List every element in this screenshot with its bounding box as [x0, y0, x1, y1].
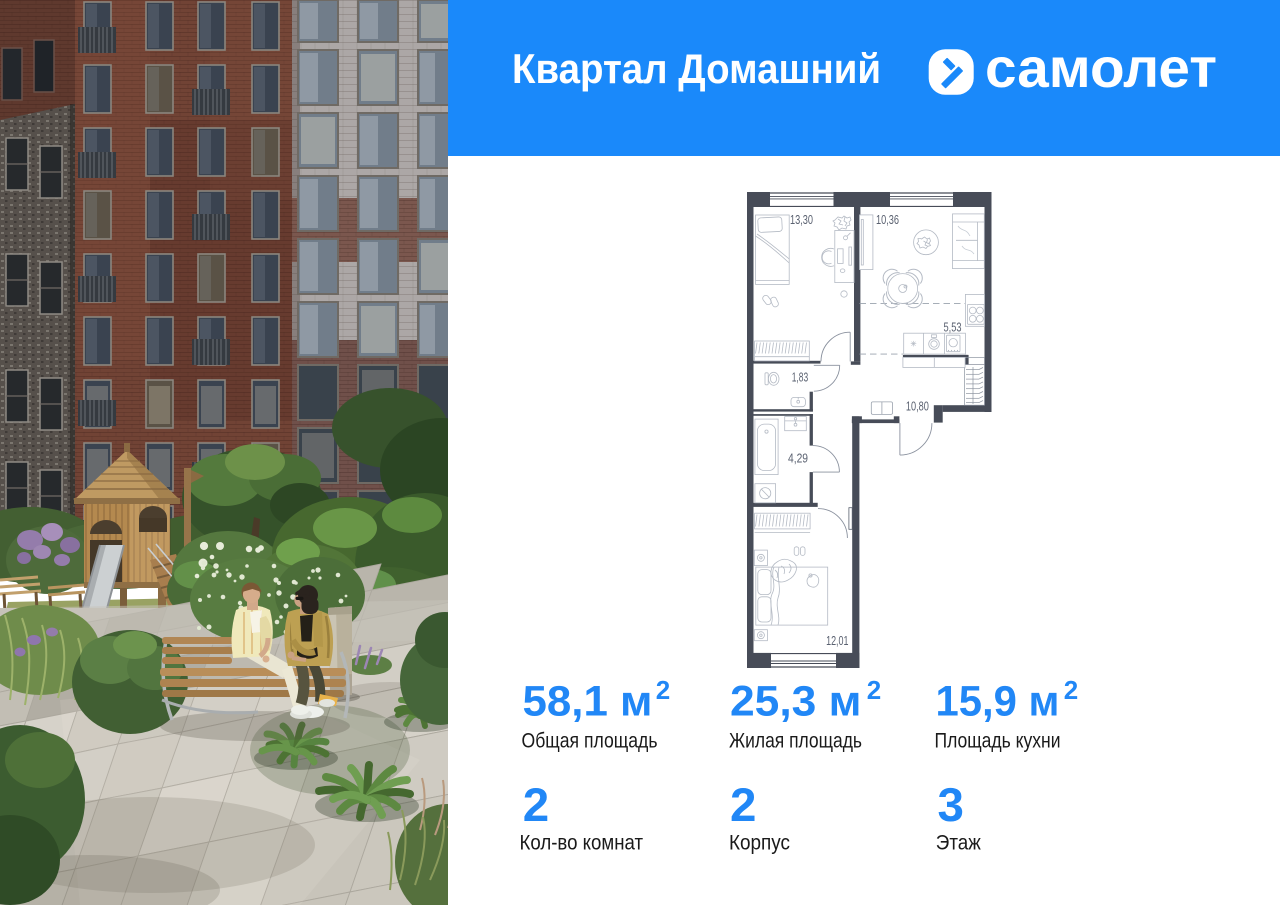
- svg-text:12,01: 12,01: [826, 634, 848, 648]
- svg-text:Жилая площадь: Жилая площадь: [729, 729, 862, 753]
- svg-text:2: 2: [1064, 675, 1078, 705]
- svg-text:3: 3: [938, 779, 964, 832]
- svg-text:15,9 м: 15,9 м: [936, 678, 1060, 726]
- svg-text:13,30: 13,30: [790, 213, 813, 227]
- svg-text:10,80: 10,80: [906, 399, 929, 413]
- svg-text:Корпус: Корпус: [729, 830, 790, 854]
- svg-text:2: 2: [523, 779, 549, 832]
- svg-text:1,83: 1,83: [792, 370, 809, 384]
- svg-text:5,53: 5,53: [944, 321, 962, 335]
- svg-text:4,29: 4,29: [788, 451, 808, 465]
- svg-text:Этаж: Этаж: [936, 830, 982, 854]
- svg-text:2: 2: [730, 779, 756, 832]
- svg-text:10,36: 10,36: [876, 213, 899, 227]
- svg-text:2: 2: [656, 675, 670, 705]
- svg-text:самолет: самолет: [985, 37, 1217, 99]
- svg-text:Кол-во комнат: Кол-во комнат: [520, 830, 644, 854]
- svg-text:Общая площадь: Общая площадь: [522, 729, 658, 753]
- svg-text:Квартал Домашний: Квартал Домашний: [512, 45, 881, 92]
- svg-text:58,1 м: 58,1 м: [523, 678, 653, 726]
- svg-text:Площадь кухни: Площадь кухни: [935, 729, 1061, 753]
- svg-text:25,3 м: 25,3 м: [730, 678, 862, 726]
- svg-text:2: 2: [867, 675, 881, 705]
